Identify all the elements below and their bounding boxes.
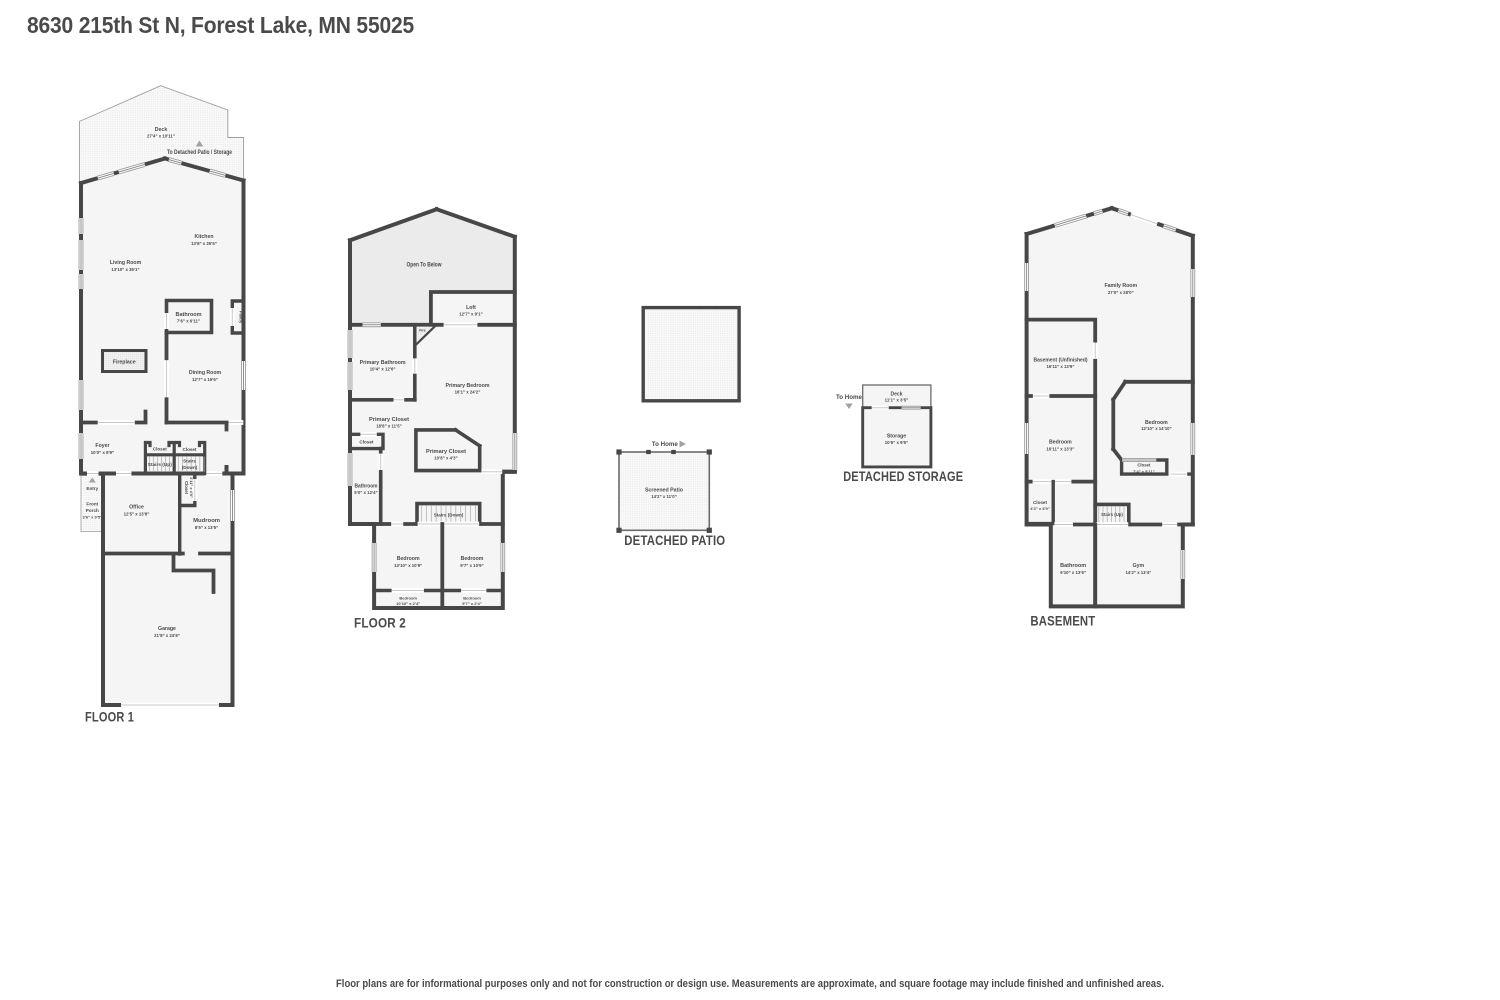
svg-text:Deck: Deck [155, 127, 168, 133]
svg-text:Closet: Closet [153, 447, 168, 452]
svg-text:Closet: Closet [182, 447, 197, 452]
svg-text:Primary Bedroom: Primary Bedroom [446, 383, 490, 389]
svg-text:Bathroom: Bathroom [176, 312, 202, 318]
svg-text:10’4” x 12’6”: 10’4” x 12’6” [370, 367, 396, 372]
svg-text:Front: Front [86, 502, 98, 507]
svg-text:DETACHED PATIO: DETACHED PATIO [624, 533, 725, 548]
svg-text:12’7” x 16’6”: 12’7” x 16’6” [192, 377, 218, 382]
svg-text:Primary Closet: Primary Closet [426, 449, 466, 455]
svg-text:8630 215th St N, Forest Lake,: 8630 215th St N, Forest Lake, MN 55025 [27, 12, 414, 38]
svg-text:12’10” x 14’10”: 12’10” x 14’10” [1141, 426, 1172, 431]
svg-text:9’7” x 10’9”: 9’7” x 10’9” [460, 563, 483, 568]
svg-text:Stairs (Down): Stairs (Down) [434, 513, 464, 518]
svg-text:Basement (Unfinished): Basement (Unfinished) [1034, 358, 1088, 364]
svg-text:Closet: Closet [184, 481, 189, 495]
svg-text:7’6” x 6’11”: 7’6” x 6’11” [177, 319, 200, 324]
svg-text:13’10” x 35’1”: 13’10” x 35’1” [111, 267, 139, 272]
svg-text:Bedroom: Bedroom [461, 556, 484, 562]
svg-text:16’11” x 13’3”: 16’11” x 13’3” [1046, 447, 1074, 452]
svg-text:Living Room: Living Room [110, 260, 142, 266]
svg-text:Primary Closet: Primary Closet [369, 417, 409, 423]
svg-text:9’7” x 2’4”: 9’7” x 2’4” [462, 601, 482, 606]
svg-text:(Down): (Down) [182, 465, 198, 470]
svg-text:10’10” x 2’4”: 10’10” x 2’4” [396, 601, 420, 606]
svg-text:Closet: Closet [359, 440, 374, 445]
svg-text:Primary Bathroom: Primary Bathroom [360, 360, 406, 366]
svg-text:27’4” x 10’11”: 27’4” x 10’11” [147, 134, 175, 139]
svg-text:11’1” x 3’5”: 11’1” x 3’5” [885, 398, 909, 403]
svg-text:10’0” x 8’9”: 10’0” x 8’9” [91, 450, 114, 455]
svg-text:1’11” x 4’9”: 1’11” x 4’9” [189, 477, 194, 498]
svg-text:BASEMENT: BASEMENT [1030, 614, 1095, 629]
svg-text:To Home: To Home [836, 394, 863, 401]
svg-text:Loft: Loft [466, 305, 476, 311]
svg-text:Entry: Entry [86, 486, 98, 491]
svg-text:Office: Office [129, 505, 144, 511]
svg-text:13’8” x 26’5”: 13’8” x 26’5” [191, 241, 217, 246]
svg-text:10’6” x 9’5”: 10’6” x 9’5” [885, 440, 908, 445]
svg-text:4’3” x 4’9”: 4’3” x 4’9” [1030, 506, 1050, 511]
svg-text:Porch: Porch [86, 508, 99, 513]
svg-text:27’0” x 28’0”: 27’0” x 28’0” [1108, 290, 1134, 295]
svg-text:10’8” x 4’3”: 10’8” x 4’3” [434, 456, 457, 461]
svg-text:Mudroom: Mudroom [193, 518, 220, 524]
svg-text:Storage: Storage [887, 434, 906, 440]
svg-text:Bathroom: Bathroom [355, 484, 378, 490]
svg-text:Stairs: Stairs [183, 459, 196, 464]
svg-text:3’6” x 9’5”: 3’6” x 9’5” [83, 515, 103, 520]
svg-text:Foyer: Foyer [95, 443, 109, 449]
svg-text:16’11” x 13’9”: 16’11” x 13’9” [1047, 364, 1075, 369]
svg-text:FLOOR 1: FLOOR 1 [85, 710, 134, 725]
svg-text:Screened Patio: Screened Patio [645, 488, 683, 494]
svg-text:Gym: Gym [1133, 563, 1145, 569]
svg-text:7’4” x 5’11”: 7’4” x 5’11” [1133, 469, 1155, 474]
svg-text:5’0” x 12’4”: 5’0” x 12’4” [354, 490, 377, 495]
svg-text:14’2” x 13’4”: 14’2” x 13’4” [1125, 570, 1151, 575]
svg-text:Bathroom: Bathroom [1060, 563, 1086, 569]
svg-text:12’7” x 9’1”: 12’7” x 9’1” [459, 312, 482, 317]
svg-text:Bedroom: Bedroom [397, 556, 420, 562]
svg-text:Kitchen: Kitchen [194, 234, 213, 240]
svg-text:18’8” x 11’5”: 18’8” x 11’5” [376, 424, 402, 429]
svg-text:To Detached Patio / Storage: To Detached Patio / Storage [167, 149, 232, 156]
svg-text:Family Room: Family Room [1105, 283, 1138, 289]
svg-text:To Home: To Home [652, 441, 679, 448]
svg-text:6’10” x 13’6”: 6’10” x 13’6” [1060, 570, 1086, 575]
svg-text:Stairs (Up): Stairs (Up) [148, 462, 172, 467]
svg-text:12’5” x 13’8”: 12’5” x 13’8” [124, 512, 150, 517]
svg-text:Floor plans are for informatio: Floor plans are for informational purpos… [336, 978, 1164, 990]
svg-text:8’5” x 13’5”: 8’5” x 13’5” [195, 525, 218, 530]
svg-text:Garage: Garage [158, 626, 176, 632]
svg-text:Dining Room: Dining Room [189, 370, 222, 376]
svg-text:21’8” x 24’8”: 21’8” x 24’8” [154, 633, 180, 638]
svg-text:Bedroom: Bedroom [399, 596, 417, 601]
svg-text:16’1” x 24’2”: 16’1” x 24’2” [455, 390, 481, 395]
svg-text:Fire: Fire [419, 329, 426, 333]
svg-text:Bedroom: Bedroom [1049, 440, 1072, 446]
svg-text:Bedroom: Bedroom [463, 596, 481, 601]
svg-text:Closet: Closet [1033, 500, 1048, 505]
svg-text:FLOOR 2: FLOOR 2 [354, 616, 406, 631]
svg-text:Stairs (Up): Stairs (Up) [1101, 512, 1123, 517]
svg-text:DETACHED STORAGE: DETACHED STORAGE [843, 469, 963, 484]
svg-text:Open To Below: Open To Below [407, 262, 442, 269]
svg-text:13’10” x 10’9”: 13’10” x 10’9” [394, 563, 422, 568]
svg-text:14’2” x 11’0”: 14’2” x 11’0” [651, 494, 677, 499]
svg-text:Fireplace: Fireplace [113, 360, 136, 366]
svg-text:Pantry: Pantry [239, 311, 244, 324]
svg-text:Closet: Closet [1137, 463, 1151, 468]
